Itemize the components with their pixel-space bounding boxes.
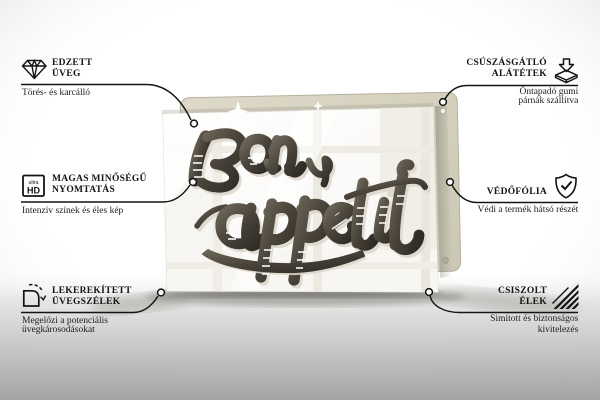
svg-text:HD: HD — [27, 186, 40, 196]
